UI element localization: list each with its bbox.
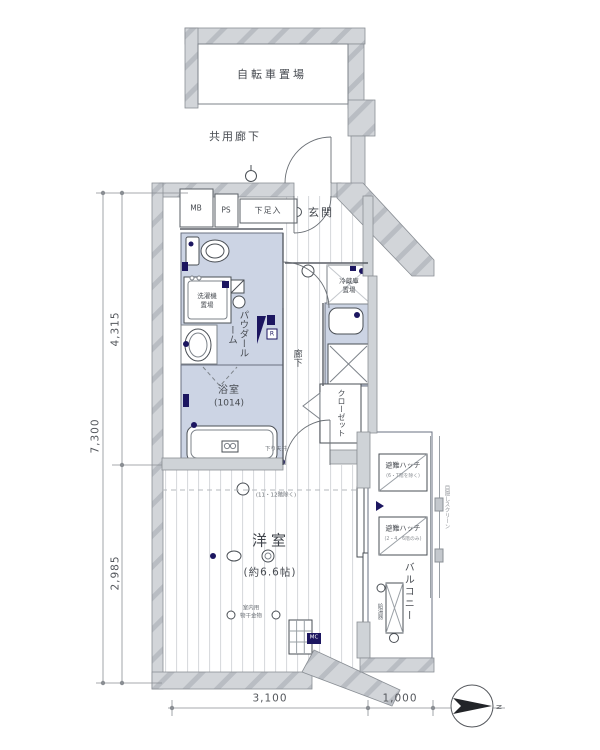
pipe-space-label: PS bbox=[221, 205, 230, 214]
western-room-label: 洋室 bbox=[252, 532, 290, 551]
compass-north-label: N bbox=[494, 704, 503, 709]
indoor-drying-label-2: 物干金物 bbox=[240, 614, 262, 621]
shoe-cabinet-label: 下足入 bbox=[255, 206, 282, 216]
floor-plan: 自転車置場 共用廊下 MB PS 下足入 玄関 洗濯機 置場 パウダールーム 浴… bbox=[0, 0, 600, 750]
dim-bottom-balcony: 1,000 bbox=[382, 692, 417, 705]
lowered-ceiling-label: 下り天井 bbox=[265, 447, 287, 454]
balcony-label: バルコニー bbox=[401, 549, 414, 635]
washing-machine-label-1: 洗濯機 bbox=[197, 292, 217, 300]
corridor-label: 廊下 bbox=[290, 345, 301, 371]
privacy-screen-label: 目隠しスクリーン bbox=[443, 461, 450, 553]
light-icon-room bbox=[237, 483, 249, 495]
refrigerator-label-2: 置場 bbox=[343, 286, 356, 294]
drying-hook-icon-1 bbox=[227, 611, 235, 619]
closet-label: クローゼット bbox=[336, 381, 346, 445]
dim-left-lower: 2,985 bbox=[109, 555, 122, 590]
mc-label: MC bbox=[310, 635, 319, 642]
bicycle-area-label: 自転車置場 bbox=[237, 68, 307, 82]
drying-hook-icon-2 bbox=[272, 611, 280, 619]
escape-hatch-lower-note: (2・4・6階のみ) bbox=[385, 537, 422, 543]
outlet-icon-1 bbox=[210, 553, 216, 559]
escape-hatch-upper-label: 避難ハッチ bbox=[386, 462, 421, 471]
meter-box-label: MB bbox=[190, 203, 202, 212]
common-corridor-label: 共用廊下 bbox=[209, 130, 261, 144]
lowered-ceiling-note: (11・12階除く) bbox=[256, 493, 296, 500]
thermostat-icon bbox=[246, 165, 257, 182]
escape-hatch-upper-note: (6・7階を除く) bbox=[386, 474, 420, 480]
stove-icon bbox=[328, 344, 369, 384]
escape-hatch-lower-label: 避難ハッチ bbox=[386, 525, 421, 534]
compass-icon bbox=[451, 685, 493, 727]
refrigerator-label-1: 冷蔵庫 bbox=[339, 277, 359, 285]
entrance-label: 玄関 bbox=[308, 206, 334, 220]
remote-controller-label: R bbox=[270, 330, 274, 338]
dim-bottom-main: 3,100 bbox=[252, 692, 287, 705]
powder-room-label: パウダールーム bbox=[226, 307, 249, 361]
dim-left-upper: 4,315 bbox=[109, 311, 122, 346]
western-room-size-label: (約6.6帖) bbox=[244, 566, 297, 579]
bathroom-size-label: (1014) bbox=[214, 398, 244, 409]
washing-machine-label-2: 置場 bbox=[201, 301, 214, 309]
escape-hatch-icon-upper bbox=[379, 454, 427, 491]
dim-left-total: 7,300 bbox=[89, 418, 102, 453]
switch-icon bbox=[267, 315, 275, 325]
kitchen-sink-icon bbox=[329, 308, 363, 334]
balcony-slider-panel-1 bbox=[357, 487, 364, 557]
indoor-drying-label-1: 室内用 bbox=[243, 606, 260, 613]
bathroom-label: 浴室 bbox=[218, 385, 240, 398]
wash-basin-icon bbox=[181, 325, 217, 364]
floor-plan-drawing bbox=[0, 0, 600, 750]
sensor-icon bbox=[227, 551, 241, 561]
water-heater-label: 給湯器 bbox=[376, 593, 383, 629]
